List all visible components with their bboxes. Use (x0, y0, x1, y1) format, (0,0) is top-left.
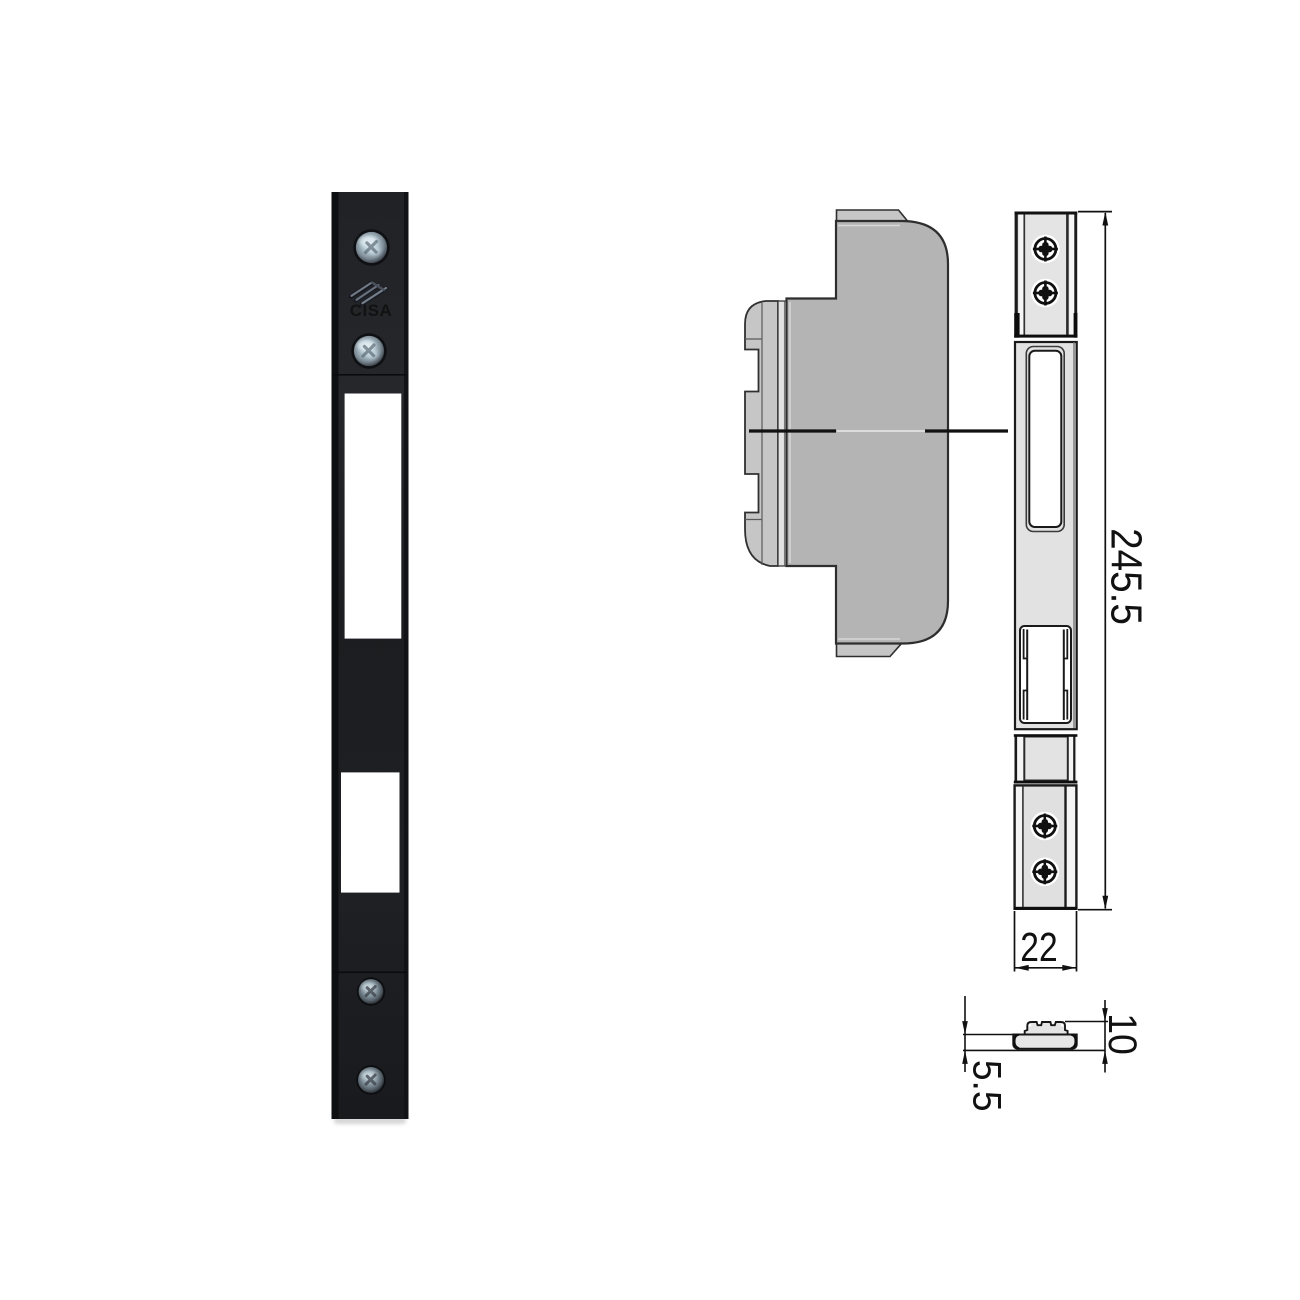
svg-text:245.5: 245.5 (1102, 528, 1152, 625)
svg-text:22: 22 (1020, 924, 1057, 970)
svg-text:CISA: CISA (350, 301, 393, 320)
svg-text:5.5: 5.5 (964, 1060, 1009, 1112)
svg-text:10: 10 (1100, 1013, 1144, 1055)
